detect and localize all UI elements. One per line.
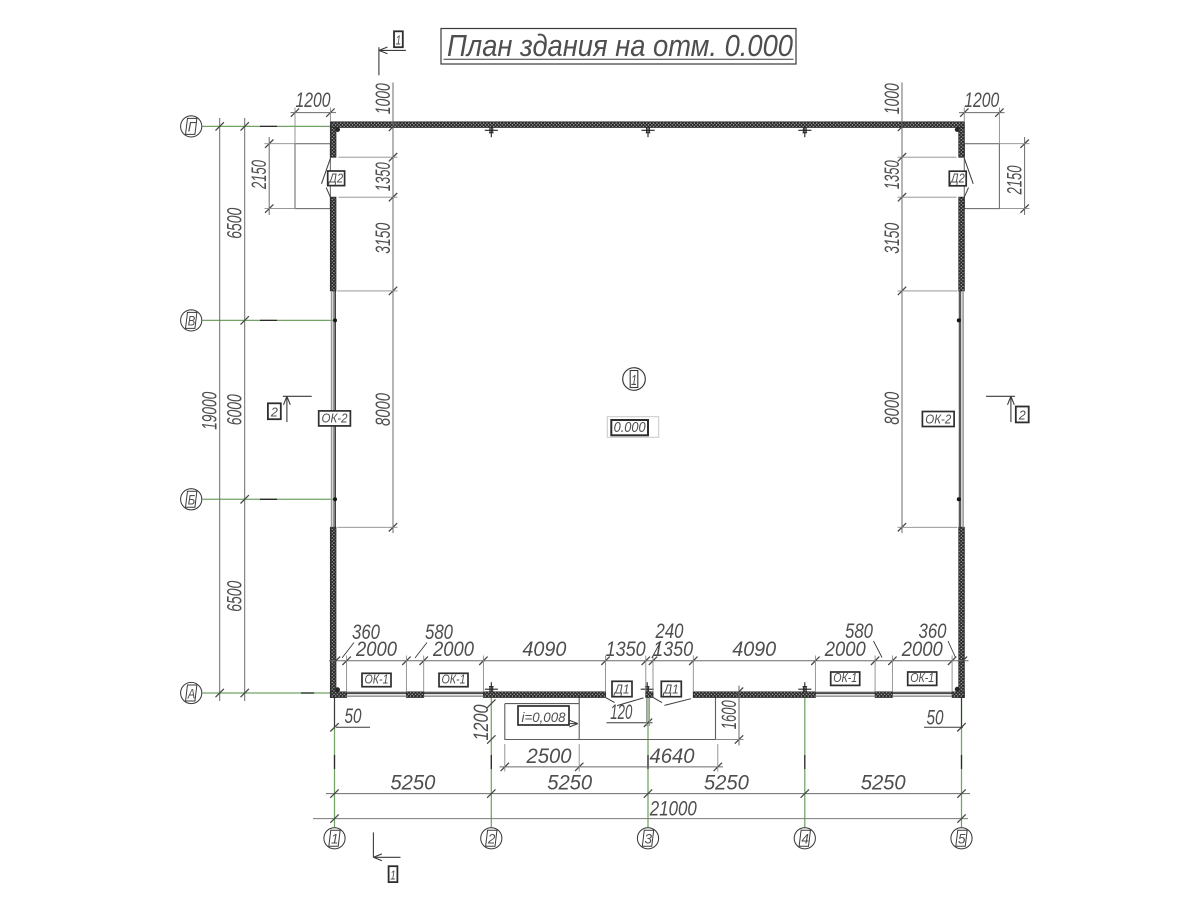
svg-text:5250: 5250 [390, 772, 435, 795]
svg-text:1200: 1200 [964, 89, 999, 112]
svg-text:ОК-1: ОК-1 [365, 672, 389, 687]
svg-text:4090: 4090 [732, 638, 776, 661]
svg-text:ОК-1: ОК-1 [442, 672, 466, 687]
svg-text:1000: 1000 [372, 83, 395, 114]
svg-text:6500: 6500 [224, 580, 247, 611]
svg-text:1: 1 [396, 33, 402, 48]
svg-text:50: 50 [927, 707, 944, 730]
svg-text:360: 360 [352, 621, 380, 644]
svg-text:1: 1 [390, 867, 396, 882]
svg-text:1: 1 [331, 831, 339, 847]
svg-text:2: 2 [1018, 408, 1027, 423]
svg-text:Д2: Д2 [327, 170, 343, 185]
svg-text:50: 50 [345, 705, 362, 728]
svg-text:1000: 1000 [881, 83, 904, 114]
svg-text:4: 4 [801, 831, 809, 847]
svg-text:4090: 4090 [522, 638, 566, 661]
svg-text:19000: 19000 [199, 392, 222, 430]
svg-text:1350: 1350 [606, 638, 646, 661]
svg-text:1200: 1200 [470, 704, 493, 740]
svg-text:8000: 8000 [881, 392, 904, 425]
svg-text:2150: 2150 [1004, 165, 1027, 195]
svg-text:240: 240 [655, 620, 684, 643]
svg-text:1600: 1600 [718, 700, 741, 729]
svg-text:2500: 2500 [526, 745, 572, 768]
svg-text:Б: Б [188, 492, 196, 508]
svg-text:580: 580 [425, 621, 453, 644]
svg-text:1: 1 [631, 372, 637, 389]
svg-text:5250: 5250 [547, 772, 592, 795]
svg-text:ОК-1: ОК-1 [910, 670, 934, 685]
svg-text:3: 3 [645, 831, 653, 847]
svg-text:360: 360 [919, 620, 947, 643]
svg-text:Д2: Д2 [949, 171, 965, 186]
svg-text:5250: 5250 [861, 772, 906, 795]
svg-text:В: В [188, 313, 196, 329]
svg-text:21000: 21000 [649, 798, 697, 821]
svg-text:3150: 3150 [372, 223, 395, 254]
svg-text:8000: 8000 [372, 393, 395, 426]
svg-text:0.000: 0.000 [614, 420, 646, 436]
svg-text:2: 2 [270, 404, 279, 419]
svg-text:6500: 6500 [224, 208, 247, 239]
svg-text:ОК-1: ОК-1 [833, 670, 857, 685]
svg-text:А: А [187, 685, 195, 701]
svg-text:3150: 3150 [881, 223, 904, 254]
svg-text:План здания на отм. 0.000: План здания на отм. 0.000 [447, 28, 793, 63]
svg-text:i=0,008: i=0,008 [522, 709, 566, 725]
svg-text:1200: 1200 [296, 89, 331, 112]
svg-text:Д1: Д1 [662, 682, 679, 697]
svg-text:ОК-2: ОК-2 [925, 411, 952, 426]
svg-text:5250: 5250 [704, 772, 749, 795]
svg-text:5: 5 [958, 831, 966, 847]
svg-text:4640: 4640 [650, 745, 695, 768]
svg-text:Д1: Д1 [613, 682, 630, 697]
svg-text:580: 580 [845, 620, 873, 643]
svg-text:1350: 1350 [881, 160, 904, 189]
svg-text:2150: 2150 [248, 160, 271, 190]
svg-text:120: 120 [610, 701, 632, 724]
svg-text:6000: 6000 [224, 394, 247, 425]
svg-text:1350: 1350 [372, 162, 395, 191]
svg-text:2: 2 [487, 831, 496, 847]
svg-text:ОК-2: ОК-2 [322, 411, 349, 426]
